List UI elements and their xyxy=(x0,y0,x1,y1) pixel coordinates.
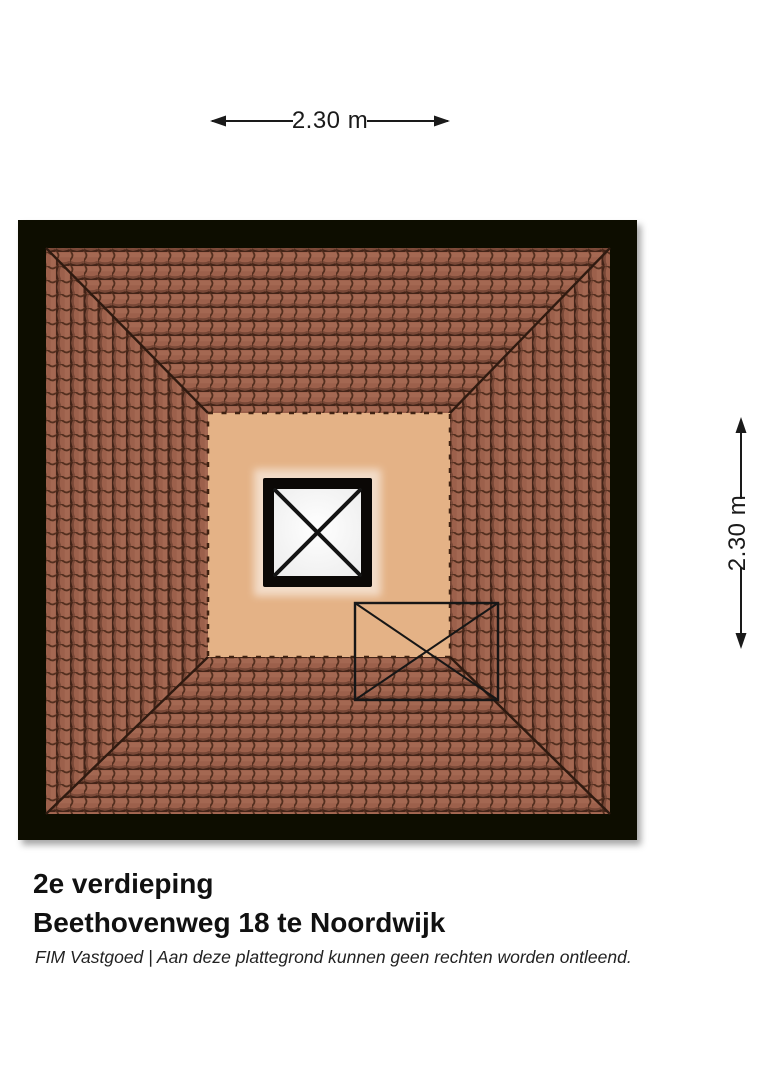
arrowhead-left-icon xyxy=(210,116,226,127)
arrowhead-right-icon xyxy=(434,116,450,127)
caption-block: 2e verdieping Beethovenweg 18 te Noordwi… xyxy=(33,864,733,942)
disclaimer-text: FIM Vastgoed | Aan deze plattegrond kunn… xyxy=(35,946,735,968)
dimension-label-horizontal: 2.30 m xyxy=(285,106,375,136)
floorplan-page: 2.30 m 2.30 m 2e verdieping Beethovenweg… xyxy=(0,0,764,1080)
dimension-label-vertical: 2.30 m xyxy=(723,488,753,578)
floor-title: 2e verdieping xyxy=(33,864,733,903)
arrowhead-down-icon xyxy=(736,633,747,649)
skylight-window xyxy=(254,469,381,596)
arrowhead-up-icon xyxy=(736,417,747,433)
address-title: Beethovenweg 18 te Noordwijk xyxy=(33,903,733,942)
